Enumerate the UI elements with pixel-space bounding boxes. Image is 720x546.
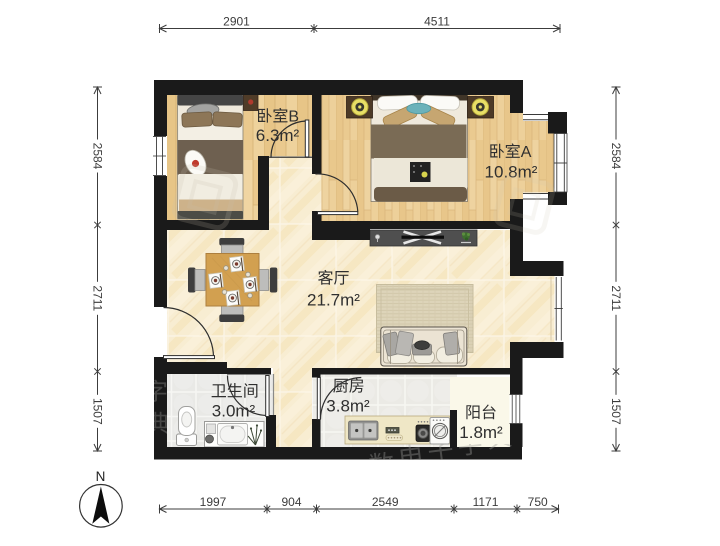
svg-text:2711: 2711	[609, 285, 623, 311]
svg-text:21.7m²: 21.7m²	[307, 291, 360, 310]
svg-text:2549: 2549	[372, 495, 399, 509]
svg-text:B: B	[288, 109, 299, 126]
svg-text:N: N	[96, 469, 106, 484]
svg-text:2584: 2584	[609, 143, 623, 170]
svg-text:2711: 2711	[90, 285, 104, 311]
svg-text:1.8m²: 1.8m²	[459, 423, 503, 442]
svg-text:904: 904	[281, 495, 301, 509]
svg-text:A: A	[521, 144, 532, 161]
svg-text:4511: 4511	[424, 15, 450, 29]
svg-text:2584: 2584	[90, 143, 104, 170]
svg-text:6.3m²: 6.3m²	[256, 126, 300, 145]
svg-text:750: 750	[528, 495, 548, 509]
svg-text:1171: 1171	[473, 495, 499, 509]
svg-text:2901: 2901	[223, 15, 250, 29]
svg-text:1997: 1997	[200, 495, 227, 509]
svg-text:3.8m²: 3.8m²	[326, 397, 370, 416]
svg-text:1507: 1507	[90, 398, 104, 425]
svg-text:3.0m²: 3.0m²	[212, 402, 256, 421]
svg-text:1507: 1507	[609, 398, 623, 425]
